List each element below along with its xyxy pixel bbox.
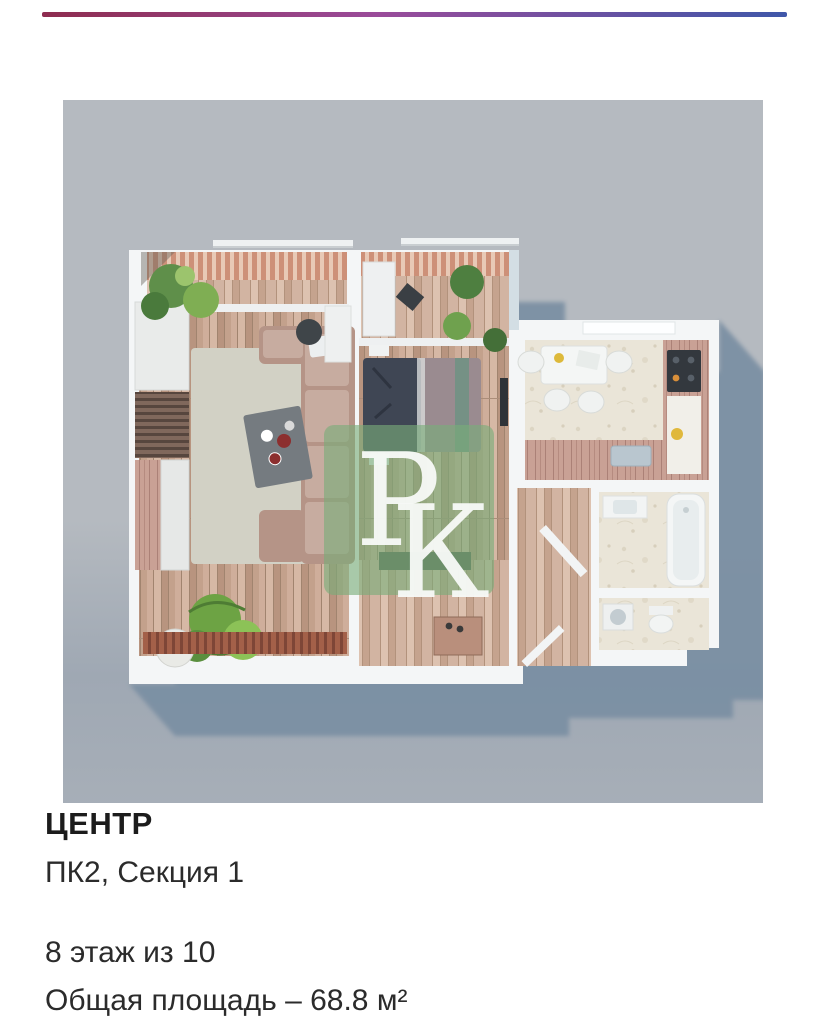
section-label: ПК2, Секция 1 <box>45 856 244 890</box>
listing-page: Р К ЦЕНТР ПК2, Секция 1 8 этаж из 10 Общ… <box>0 0 829 1024</box>
desk-chair <box>296 319 322 345</box>
watermark-letter-k: К <box>391 479 490 628</box>
desk <box>325 306 351 362</box>
complex-name: ЦЕНТР <box>45 806 153 842</box>
sideboard-white <box>161 460 189 570</box>
nightstand-top <box>369 345 389 356</box>
chair-bottom-1 <box>544 389 570 411</box>
brand-gradient-bar <box>42 12 787 17</box>
tv-slat-panel <box>135 392 189 458</box>
toilet-tank <box>649 606 673 615</box>
terrace-dresser <box>363 262 395 336</box>
bottom-deck-slats <box>143 632 347 654</box>
toilet <box>649 615 673 633</box>
sideboard-wood <box>135 460 161 570</box>
chair-bottom-2 <box>578 391 604 413</box>
floor-plan-photo[interactable]: Р К <box>63 100 763 803</box>
kitchen-window <box>583 322 675 334</box>
stove <box>667 350 701 392</box>
floor-label: 8 этаж из 10 <box>45 936 215 970</box>
floor-plan-render: Р К <box>63 100 763 803</box>
fruit-bowl <box>671 428 683 440</box>
area-label: Общая площадь – 68.8 м² <box>45 984 407 1018</box>
terrace-plant-1 <box>450 265 484 299</box>
terrace-plant-3 <box>483 328 507 352</box>
chair-right <box>606 351 632 373</box>
terrace-plant-2 <box>443 312 471 340</box>
chair-left <box>518 351 544 373</box>
glass-panel <box>509 250 519 330</box>
tv-panel <box>500 378 508 426</box>
sink <box>611 446 651 466</box>
